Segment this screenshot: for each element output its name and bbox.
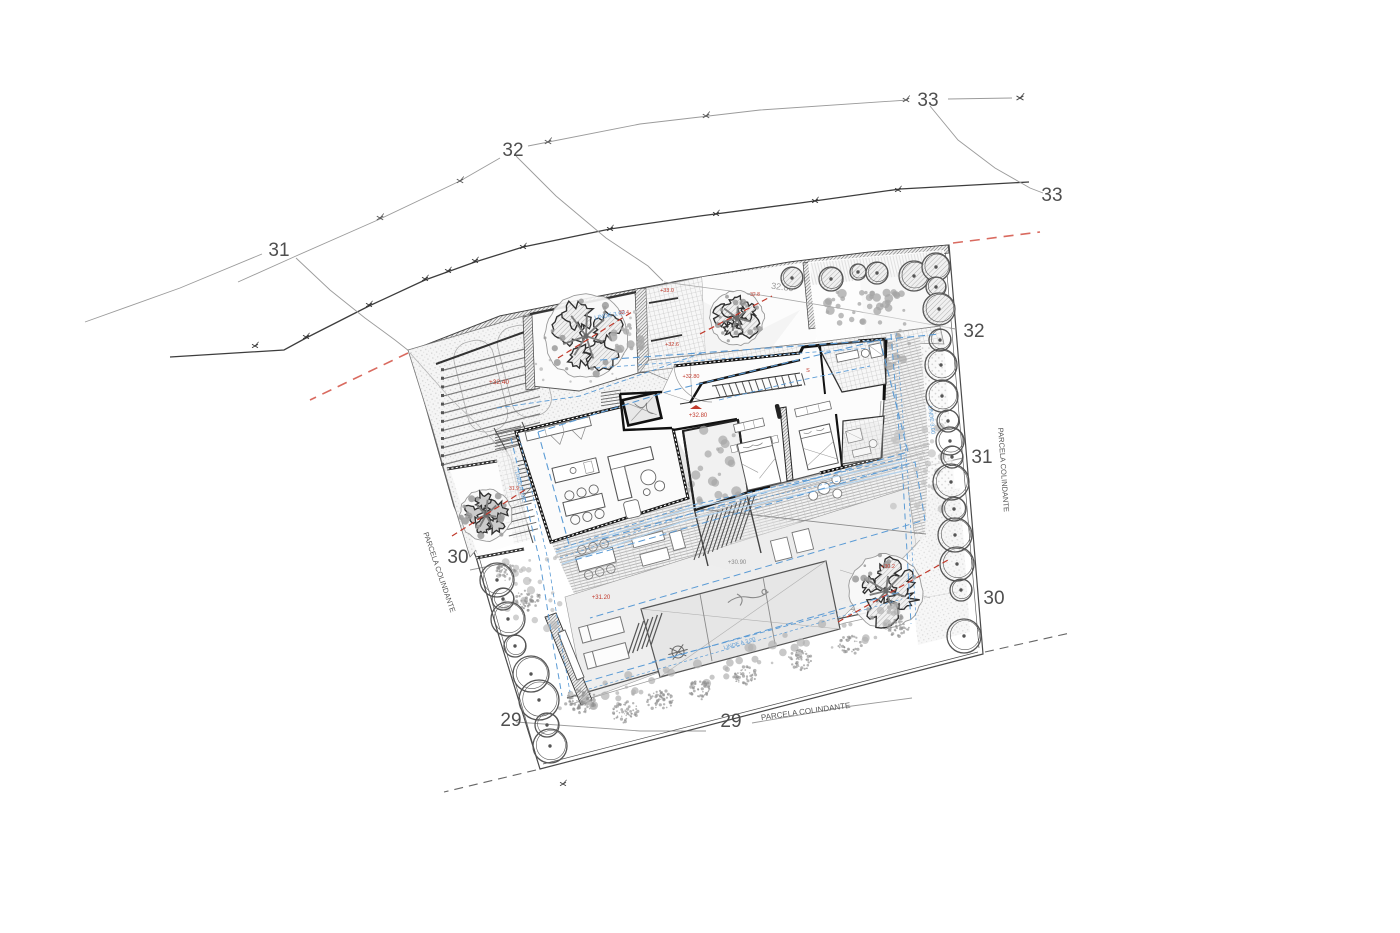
svg-text:31.9: 31.9 (509, 486, 519, 492)
svg-text:+30.90: +30.90 (728, 560, 747, 566)
svg-text:+33.0: +33.0 (660, 288, 674, 294)
svg-text:33: 33 (917, 90, 938, 111)
svg-text:31: 31 (971, 447, 992, 468)
svg-text:+30.2: +30.2 (881, 564, 895, 570)
svg-text:S: S (806, 368, 810, 374)
svg-text:32: 32 (963, 321, 984, 342)
svg-text:32.8: 32.8 (750, 292, 760, 298)
svg-text:32: 32 (502, 140, 523, 161)
svg-text:31: 31 (268, 240, 289, 261)
svg-text:30: 30 (447, 547, 468, 568)
svg-text:29: 29 (500, 710, 521, 731)
svg-text:+32.80: +32.80 (683, 374, 700, 380)
svg-text:30: 30 (983, 588, 1004, 609)
svg-text:+32.40: +32.40 (489, 379, 509, 386)
svg-text:+32.6: +32.6 (665, 342, 679, 348)
svg-text:32.4: 32.4 (619, 310, 629, 316)
svg-text:+31.20: +31.20 (592, 595, 611, 601)
svg-text:+32.80: +32.80 (689, 413, 708, 419)
svg-text:33: 33 (1041, 185, 1062, 206)
